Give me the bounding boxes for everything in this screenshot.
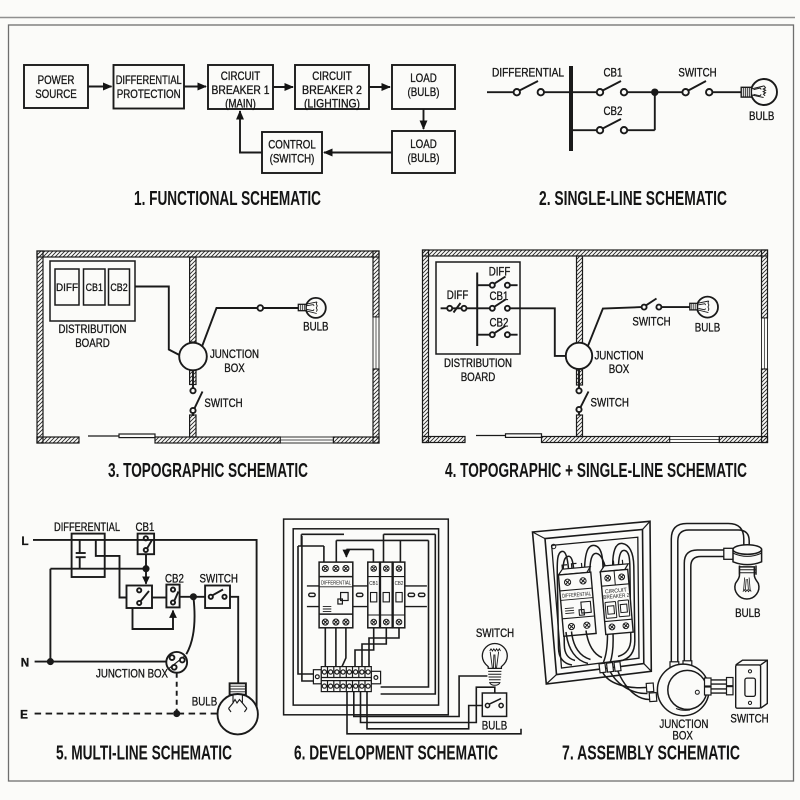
svg-text:DIFF: DIFF bbox=[489, 265, 511, 278]
svg-text:JUNCTION BOX: JUNCTION BOX bbox=[96, 668, 168, 681]
svg-text:CB2: CB2 bbox=[110, 282, 127, 294]
svg-text:DISTRIBUTION: DISTRIBUTION bbox=[59, 323, 127, 336]
svg-text:CB1: CB1 bbox=[490, 290, 509, 303]
svg-text:(MAIN): (MAIN) bbox=[225, 98, 256, 111]
svg-text:BULB: BULB bbox=[735, 607, 761, 620]
svg-text:BULB: BULB bbox=[482, 720, 508, 733]
svg-text:BOARD: BOARD bbox=[75, 337, 110, 350]
svg-text:BOX: BOX bbox=[609, 363, 630, 376]
svg-text:SWITCH: SWITCH bbox=[591, 397, 629, 410]
svg-text:LOAD: LOAD bbox=[410, 72, 437, 85]
svg-text:CB2: CB2 bbox=[604, 105, 623, 118]
svg-text:BOARD: BOARD bbox=[461, 371, 496, 384]
svg-text:(BULB): (BULB) bbox=[408, 86, 440, 99]
svg-text:(SWITCH): (SWITCH) bbox=[270, 153, 315, 166]
svg-text:DIFFERENTIAL: DIFFERENTIAL bbox=[116, 74, 182, 87]
svg-text:BREAKER 2: BREAKER 2 bbox=[302, 84, 362, 97]
svg-text:BREAKER 1: BREAKER 1 bbox=[212, 84, 270, 97]
svg-text:(LIGHTING): (LIGHTING) bbox=[304, 98, 360, 111]
svg-text:DIFF: DIFF bbox=[447, 289, 469, 302]
svg-text:BULB: BULB bbox=[192, 696, 218, 709]
svg-text:POWER: POWER bbox=[38, 74, 75, 87]
svg-text:CONTROL: CONTROL bbox=[268, 139, 316, 152]
svg-text:PROTECTION: PROTECTION bbox=[117, 88, 181, 101]
svg-text:DIFF: DIFF bbox=[56, 282, 78, 294]
svg-text:3. TOPOGRAPHIC SCHEMATIC: 3. TOPOGRAPHIC SCHEMATIC bbox=[108, 460, 308, 482]
svg-text:CIRCUIT: CIRCUIT bbox=[221, 70, 260, 83]
svg-text:CB2: CB2 bbox=[490, 317, 509, 330]
svg-text:DIFFERENTIAL: DIFFERENTIAL bbox=[321, 581, 351, 587]
svg-text:5. MULTI-LINE SCHEMATIC: 5. MULTI-LINE SCHEMATIC bbox=[56, 743, 232, 765]
svg-text:BULB: BULB bbox=[749, 110, 775, 123]
svg-text:DIFFERENTIAL: DIFFERENTIAL bbox=[54, 521, 120, 534]
svg-text:BULB: BULB bbox=[303, 321, 329, 334]
svg-text:CB2: CB2 bbox=[165, 573, 184, 586]
svg-text:N: N bbox=[21, 657, 29, 670]
svg-text:6. DEVELOPMENT SCHEMATIC: 6. DEVELOPMENT SCHEMATIC bbox=[294, 743, 498, 765]
svg-text:BULB: BULB bbox=[695, 322, 721, 335]
svg-text:JUNCTION: JUNCTION bbox=[594, 350, 643, 363]
svg-text:DISTRIBUTION: DISTRIBUTION bbox=[444, 357, 512, 370]
svg-text:CB1: CB1 bbox=[136, 521, 155, 534]
svg-text:CIRCUIT: CIRCUIT bbox=[312, 70, 351, 83]
svg-text:BOX: BOX bbox=[672, 730, 693, 743]
svg-text:4. TOPOGRAPHIC + SINGLE-LINE S: 4. TOPOGRAPHIC + SINGLE-LINE SCHEMATIC bbox=[445, 460, 747, 482]
svg-text:BOX: BOX bbox=[224, 362, 245, 375]
svg-text:CB1: CB1 bbox=[86, 282, 103, 294]
svg-text:2. SINGLE-LINE SCHEMATIC: 2. SINGLE-LINE SCHEMATIC bbox=[539, 188, 727, 210]
svg-text:JUNCTION: JUNCTION bbox=[210, 348, 259, 361]
svg-text:DIFFERENTIAL: DIFFERENTIAL bbox=[492, 67, 564, 80]
svg-text:SWITCH: SWITCH bbox=[678, 67, 716, 80]
svg-text:SWITCH: SWITCH bbox=[476, 627, 514, 640]
svg-text:SWITCH: SWITCH bbox=[204, 397, 242, 410]
svg-text:7. ASSEMBLY SCHEMATIC: 7. ASSEMBLY SCHEMATIC bbox=[562, 743, 740, 765]
svg-text:(BULB): (BULB) bbox=[408, 152, 440, 165]
svg-text:SWITCH: SWITCH bbox=[730, 713, 768, 726]
svg-text:CB2: CB2 bbox=[395, 581, 404, 587]
svg-text:E: E bbox=[20, 709, 28, 722]
svg-text:1. FUNCTIONAL SCHEMATIC: 1. FUNCTIONAL SCHEMATIC bbox=[134, 188, 321, 210]
svg-text:SWITCH: SWITCH bbox=[200, 573, 238, 586]
svg-text:SWITCH: SWITCH bbox=[632, 316, 670, 329]
svg-text:CB1: CB1 bbox=[369, 581, 378, 587]
svg-text:SOURCE: SOURCE bbox=[35, 88, 77, 101]
svg-text:L: L bbox=[21, 535, 28, 548]
svg-text:CB1: CB1 bbox=[604, 67, 623, 80]
svg-text:LOAD: LOAD bbox=[410, 138, 437, 151]
